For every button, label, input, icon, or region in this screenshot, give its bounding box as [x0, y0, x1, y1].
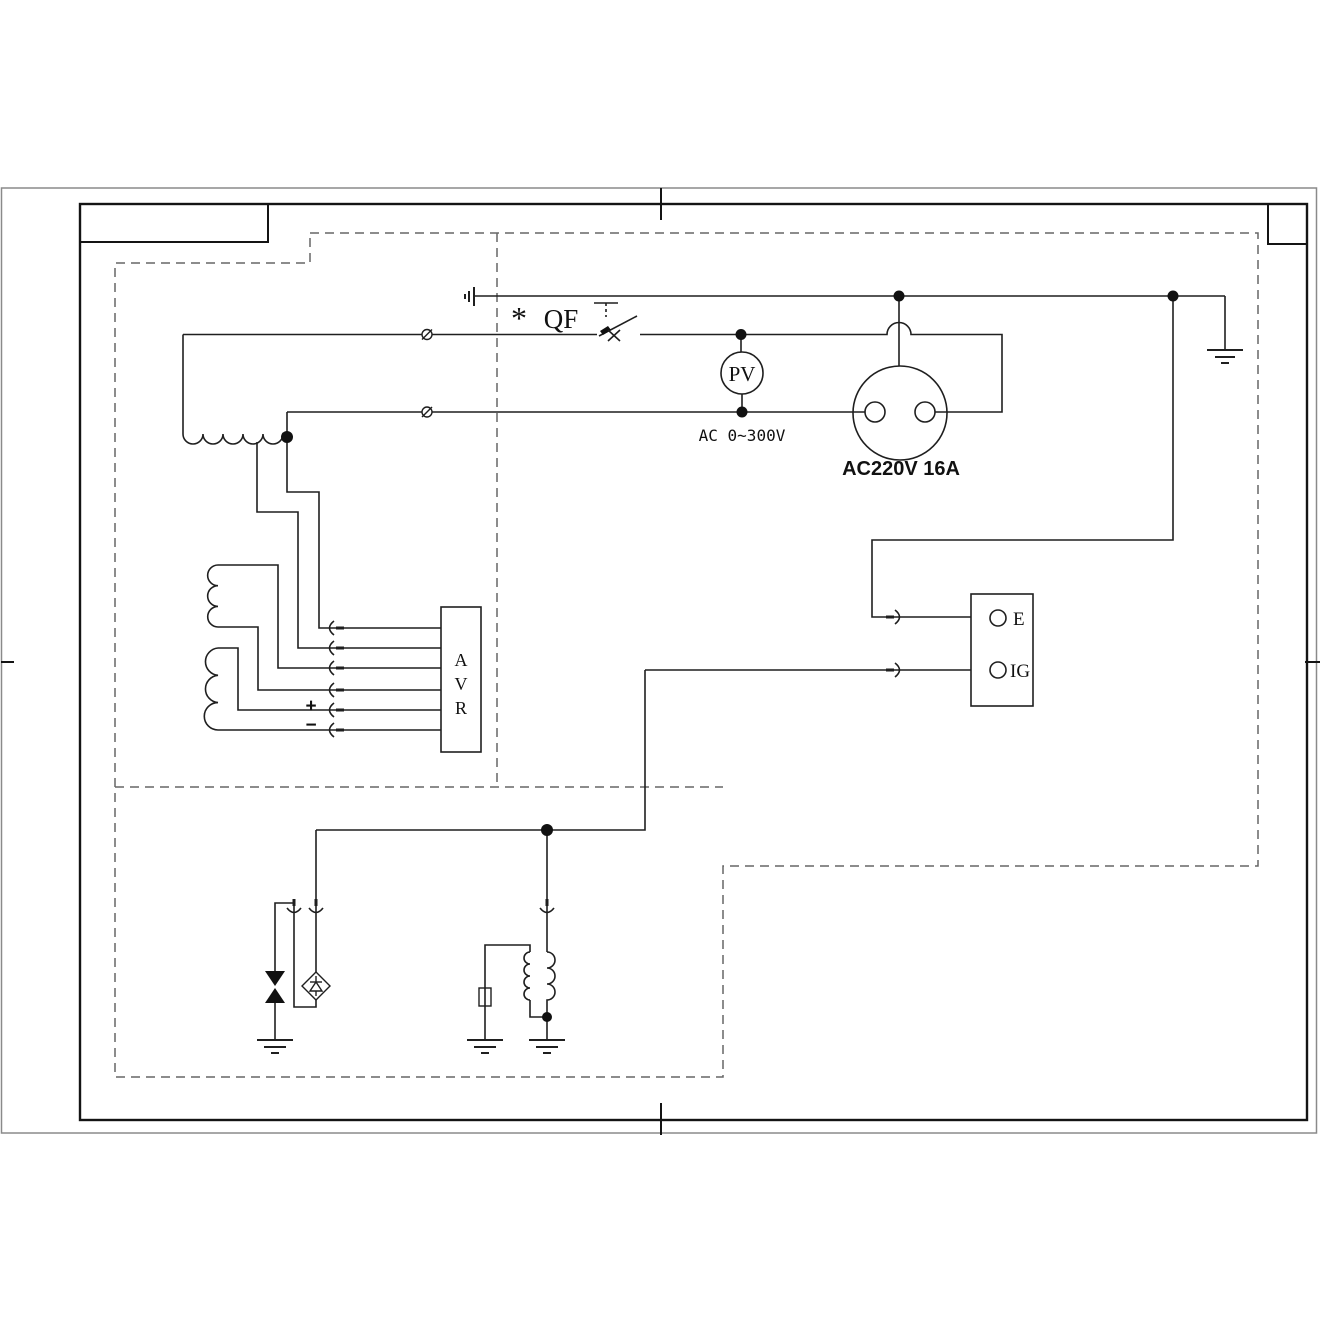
aux-winding-2-coil — [204, 648, 218, 730]
enclosure-outline — [115, 233, 1258, 1077]
stator-winding-coil — [183, 434, 288, 444]
breaker-asterisk-label: * — [511, 300, 527, 336]
connector-icon — [422, 407, 432, 417]
breaker-label: QF — [544, 304, 579, 334]
ground-icon — [529, 1040, 565, 1053]
wire-avr-2 — [257, 442, 441, 648]
diode-module — [302, 972, 330, 1000]
wire-avr-4 — [218, 627, 441, 690]
ground-icon — [257, 1040, 293, 1053]
junction-dot — [736, 329, 747, 340]
wire-avr-1 — [287, 437, 441, 628]
connectors — [287, 330, 900, 913]
aux-winding-1-coil — [208, 565, 218, 627]
ground-icon — [465, 287, 474, 306]
avr-label-r: R — [455, 698, 467, 718]
ground-icon — [467, 1040, 503, 1053]
junction-dot — [1168, 291, 1179, 302]
wire-breaker-to-socket — [640, 323, 1002, 413]
socket-body — [853, 366, 947, 460]
avr-box: A V R — [441, 607, 481, 752]
connector-icon — [422, 330, 432, 340]
title-block-top-left — [80, 204, 268, 242]
dc-minus-label: − — [305, 715, 316, 736]
pv-voltmeter: PV — [721, 352, 763, 394]
ac-socket — [853, 366, 947, 460]
sheet-frame — [1, 188, 1320, 1135]
junction-dot — [541, 824, 553, 836]
spark-gap — [265, 971, 285, 1003]
socket-pin-right — [915, 402, 935, 422]
avr-label-v: V — [455, 674, 468, 694]
terminal-block: E IG — [971, 594, 1033, 706]
ignition-coil-primary — [547, 952, 555, 1040]
terminal-ig-label: IG — [1010, 661, 1030, 682]
wire-avr-3 — [218, 565, 441, 668]
junction-dot — [737, 407, 748, 418]
dc-plus-label: + — [305, 696, 316, 717]
title-block-top-right — [1268, 204, 1307, 244]
socket-pin-left — [865, 402, 885, 422]
junction-dot — [281, 431, 293, 443]
terminal-e-post — [990, 610, 1006, 626]
voltmeter-label: PV — [729, 362, 756, 386]
junction-dot — [542, 1012, 552, 1022]
wiring-diagram-canvas: PV AC 0~300V AC220V 16A * QF A V R + − E… — [0, 0, 1323, 1323]
ground-icon — [1207, 350, 1243, 363]
wire-coil-to-fuse — [485, 945, 530, 1040]
wire-avr-5 — [218, 648, 441, 710]
terminal-e-label: E — [1013, 609, 1025, 630]
centering-marks — [1, 188, 1320, 1135]
dashed-enclosure — [115, 233, 1258, 1077]
terminal-ig-post — [990, 662, 1006, 678]
junction-dots — [281, 291, 1179, 1023]
breaker-x-mark — [608, 330, 620, 341]
voltmeter-range-label: AC 0~300V — [699, 426, 786, 445]
socket-rating-label: AC220V 16A — [842, 458, 960, 480]
schematic-page: PV AC 0~300V AC220V 16A * QF A V R + − E… — [0, 0, 1323, 1323]
qf-breaker — [594, 303, 637, 341]
junction-dot — [894, 291, 905, 302]
avr-label-a: A — [455, 650, 468, 670]
outer-page-border — [2, 188, 1317, 1133]
main-frame-border — [80, 204, 1307, 1120]
ignition-coil-secondary — [524, 952, 530, 1000]
